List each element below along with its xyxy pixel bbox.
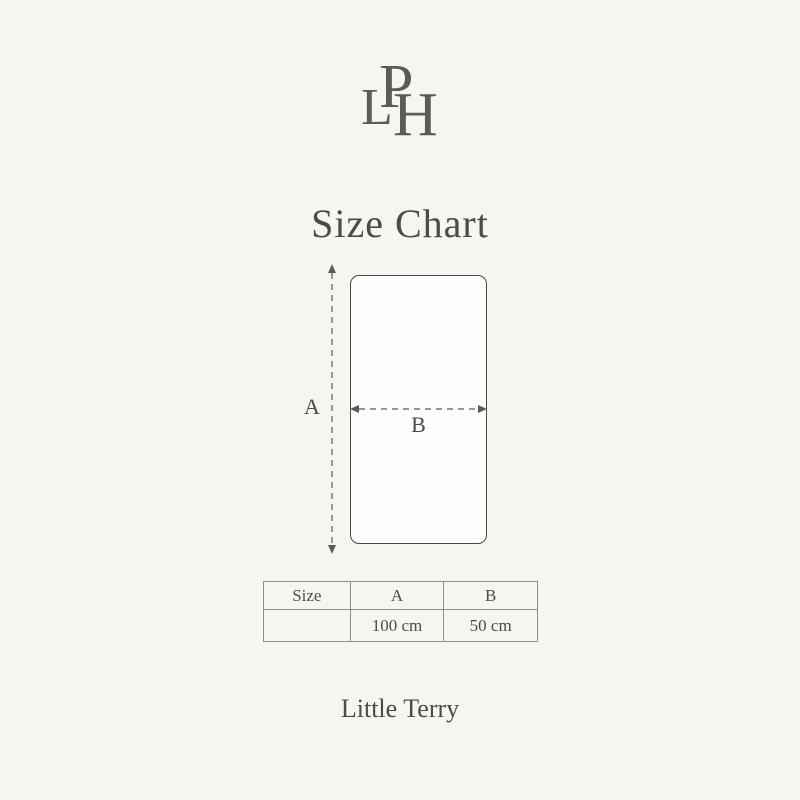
size-table: Size A B 100 cm 50 cm [263, 581, 538, 642]
height-dimension-arrow [325, 264, 339, 554]
height-dimension-label: A [300, 394, 324, 420]
product-name: Little Terry [0, 694, 800, 724]
size-table-data-row: 100 cm 50 cm [264, 610, 538, 642]
logo-letter-h: H [393, 84, 438, 146]
width-dimension-label: B [351, 412, 486, 438]
size-table-header-b: B [444, 582, 538, 610]
size-table-header-a: A [350, 582, 444, 610]
product-outline: B [350, 275, 487, 544]
size-chart-page: L P H Size Chart A B Size A B 100 cm [0, 0, 800, 800]
brand-logo: L P H [360, 60, 440, 154]
dimension-b-value: 50 cm [444, 610, 538, 642]
size-table-header-row: Size A B [264, 582, 538, 610]
page-title: Size Chart [0, 200, 800, 247]
size-cell [264, 610, 351, 642]
size-table-header-size: Size [264, 582, 351, 610]
dimension-a-value: 100 cm [350, 610, 444, 642]
